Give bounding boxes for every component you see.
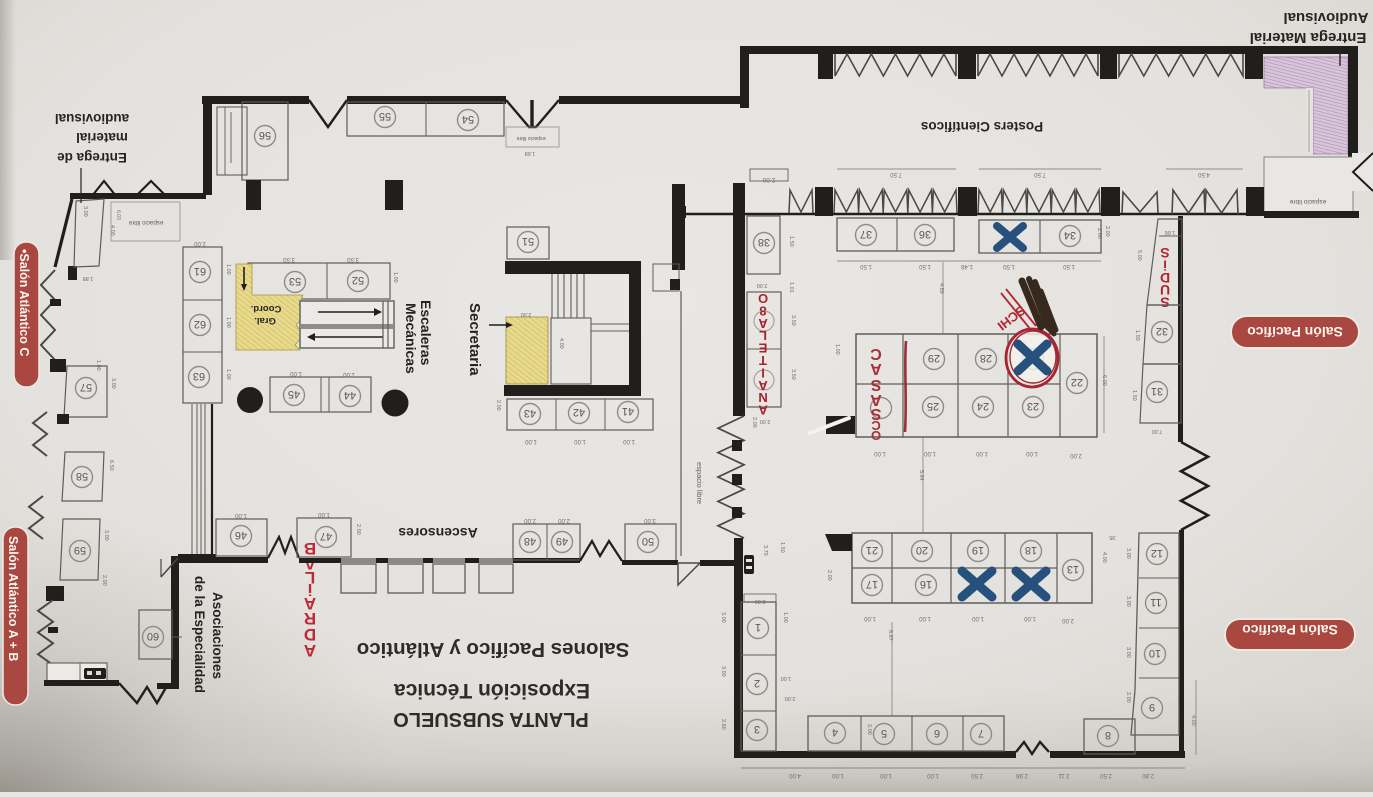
svg-text:1.00: 1.00 — [225, 369, 231, 380]
svg-text:1.50: 1.50 — [860, 263, 872, 269]
svg-text:2.00: 2.00 — [1125, 692, 1131, 703]
svg-text:48: 48 — [524, 535, 536, 547]
svg-text:1.00: 1.00 — [225, 264, 231, 275]
svg-text:2.00: 2.00 — [194, 240, 206, 246]
svg-text:2.00: 2.00 — [760, 418, 771, 424]
svg-text:55: 55 — [379, 110, 391, 122]
svg-text:8: 8 — [1105, 729, 1111, 741]
svg-text:3.00: 3.00 — [103, 530, 109, 541]
svg-text:C: C — [870, 345, 882, 362]
svg-text:2.00: 2.00 — [866, 724, 872, 735]
svg-text:6.87: 6.87 — [887, 630, 893, 641]
svg-text:1.00: 1.00 — [290, 370, 302, 376]
svg-text:61: 61 — [194, 265, 206, 277]
svg-text:49: 49 — [556, 535, 568, 547]
svg-text:2.00: 2.00 — [495, 400, 501, 411]
svg-text:53: 53 — [289, 275, 301, 287]
svg-text:19: 19 — [972, 544, 984, 556]
svg-text:1.00: 1.00 — [880, 772, 892, 778]
svg-text:7.50: 7.50 — [1034, 171, 1046, 177]
svg-text:1.00: 1.00 — [834, 344, 840, 355]
svg-text:Salón Pacífico: Salón Pacífico — [1242, 622, 1338, 638]
svg-text:1.50: 1.50 — [779, 542, 785, 553]
svg-text:de la Especialidad: de la Especialidad — [192, 576, 207, 693]
svg-text:2.00: 2.00 — [1096, 228, 1102, 239]
svg-text:1.00: 1.00 — [864, 615, 876, 621]
svg-text:2.11: 2.11 — [1058, 772, 1070, 778]
svg-text:1.00: 1.00 — [1026, 450, 1038, 456]
svg-text:20: 20 — [916, 544, 928, 556]
svg-text:2.00: 2.00 — [558, 517, 570, 523]
svg-text:2.50: 2.50 — [521, 311, 532, 317]
svg-text:56: 56 — [259, 129, 271, 141]
svg-text:1: 1 — [755, 621, 761, 633]
svg-text:O: O — [871, 428, 881, 443]
svg-text:1.00: 1.00 — [225, 317, 231, 328]
svg-text:1.68: 1.68 — [525, 150, 536, 156]
svg-text:4.00: 4.00 — [1101, 552, 1107, 563]
svg-text:A: A — [758, 403, 768, 418]
svg-text:3.50: 3.50 — [790, 369, 796, 380]
svg-text:13: 13 — [1067, 563, 1079, 575]
svg-text:Asociaciones: Asociaciones — [210, 592, 225, 679]
svg-text:51: 51 — [522, 235, 534, 247]
svg-text:1.50: 1.50 — [919, 263, 931, 269]
svg-text:29: 29 — [928, 352, 940, 364]
svg-text:2.98: 2.98 — [1016, 772, 1028, 778]
svg-text:4.50: 4.50 — [1198, 171, 1210, 177]
svg-text:1.00: 1.00 — [976, 450, 988, 456]
svg-text:1.88: 1.88 — [83, 275, 94, 281]
svg-text:Posters Científicos: Posters Científicos — [921, 119, 1043, 134]
svg-text:Salón Pacífico: Salón Pacífico — [1247, 324, 1343, 340]
svg-text:63: 63 — [193, 370, 205, 382]
svg-text:23: 23 — [1027, 400, 1039, 412]
svg-text:59: 59 — [74, 544, 86, 556]
svg-text:4.00: 4.00 — [109, 225, 115, 236]
svg-text:Escaleras: Escaleras — [418, 300, 434, 366]
svg-text:9: 9 — [1149, 701, 1155, 713]
svg-text:2.00: 2.00 — [826, 570, 832, 581]
svg-text:1.00: 1.00 — [1024, 615, 1036, 621]
svg-text:3.50: 3.50 — [347, 256, 359, 262]
svg-text:3.00: 3.00 — [644, 517, 656, 523]
svg-text:•Salón Atlántico C: •Salón Atlántico C — [17, 249, 31, 356]
svg-text:38: 38 — [758, 236, 770, 248]
svg-text:44: 44 — [344, 389, 356, 401]
svg-text:PLANTA SUBSUELO: PLANTA SUBSUELO — [393, 708, 589, 730]
svg-text:45: 45 — [288, 388, 300, 400]
svg-text:1.00: 1.00 — [924, 450, 936, 456]
svg-text:1.00: 1.00 — [781, 675, 792, 681]
svg-text:17: 17 — [866, 578, 878, 590]
svg-text:7: 7 — [978, 727, 984, 739]
svg-text:2.80: 2.80 — [1142, 772, 1154, 778]
svg-text:5.00: 5.00 — [1136, 250, 1142, 261]
svg-text:Entrega Material: Entrega Material — [1250, 29, 1367, 46]
svg-text:1.50: 1.50 — [1134, 330, 1140, 341]
svg-text:57: 57 — [80, 381, 92, 393]
svg-text:18: 18 — [1025, 544, 1037, 556]
svg-text:60: 60 — [147, 630, 159, 642]
svg-text:2.00: 2.00 — [755, 598, 766, 604]
svg-text:espacio libre: espacio libre — [516, 135, 545, 141]
svg-text:Coord.: Coord. — [251, 303, 282, 314]
svg-text:2.00: 2.00 — [355, 524, 361, 535]
svg-text:4: 4 — [832, 726, 838, 738]
svg-text:espacio libre: espacio libre — [128, 219, 163, 226]
svg-text:S: S — [1160, 295, 1169, 311]
svg-text:audiovisual: audiovisual — [55, 111, 129, 126]
svg-text:25: 25 — [927, 400, 939, 412]
svg-text:6: 6 — [934, 727, 940, 739]
svg-text:41: 41 — [622, 405, 634, 417]
svg-text:1.00: 1.00 — [919, 615, 931, 621]
svg-text:2.00: 2.00 — [751, 417, 757, 428]
svg-text:Exposición Técnica: Exposición Técnica — [394, 679, 590, 702]
svg-text:Gral.: Gral. — [254, 315, 276, 326]
svg-text:31: 31 — [1151, 385, 1163, 397]
svg-text:24: 24 — [977, 400, 989, 412]
svg-text:4.00: 4.00 — [1190, 715, 1196, 726]
svg-text:58: 58 — [76, 470, 88, 482]
svg-text:1.00: 1.00 — [343, 371, 355, 377]
svg-text:52: 52 — [352, 274, 364, 286]
svg-text:2.00: 2.00 — [1062, 617, 1074, 623]
svg-text:1.00: 1.00 — [782, 612, 788, 623]
svg-text:1.00: 1.00 — [874, 450, 886, 456]
svg-text:1.00: 1.00 — [832, 772, 844, 778]
svg-text:3.70: 3.70 — [762, 545, 768, 556]
svg-text:32: 32 — [1156, 325, 1168, 337]
svg-text:11: 11 — [1150, 596, 1161, 608]
svg-text:3.50: 3.50 — [790, 315, 796, 326]
svg-text:1.00: 1.00 — [318, 511, 330, 517]
svg-text:2.00: 2.00 — [1070, 452, 1082, 458]
svg-text:3: 3 — [754, 723, 760, 735]
svg-text:1.50: 1.50 — [1003, 263, 1015, 269]
svg-text:6.50: 6.50 — [108, 460, 114, 471]
svg-text:6.03: 6.03 — [115, 210, 121, 220]
svg-text:54: 54 — [462, 113, 474, 125]
svg-text:Secretaria: Secretaria — [466, 303, 483, 376]
svg-text:3.00: 3.00 — [82, 206, 88, 217]
svg-text:Entrega de: Entrega de — [57, 150, 127, 165]
svg-text:espacio libre: espacio libre — [1289, 198, 1326, 205]
svg-text:3.00: 3.00 — [1125, 596, 1131, 607]
svg-text:2.00: 2.00 — [762, 176, 775, 183]
svg-text:21: 21 — [866, 544, 878, 556]
svg-text:1.00: 1.00 — [95, 360, 101, 371]
svg-text:Salones Pacífico y Atlántico: Salones Pacífico y Atlántico — [357, 638, 630, 661]
svg-text:1.00: 1.00 — [927, 772, 939, 778]
svg-text:A: A — [304, 641, 316, 660]
svg-text:A: A — [870, 360, 882, 377]
svg-text:1.00: 1.00 — [235, 512, 247, 518]
svg-text:5: 5 — [881, 727, 887, 739]
svg-text:Mecánicas: Mecánicas — [403, 303, 419, 374]
svg-text:62: 62 — [194, 318, 206, 330]
svg-text:Salón Atlántico A + B: Salón Atlántico A + B — [6, 536, 20, 661]
svg-text:3.00: 3.00 — [720, 666, 726, 677]
svg-text:7.00: 7.00 — [1152, 428, 1163, 434]
svg-text:Audiovisual: Audiovisual — [1283, 9, 1368, 26]
svg-text:5.84: 5.84 — [918, 470, 924, 481]
svg-text:7.50: 7.50 — [890, 171, 902, 177]
svg-text:34: 34 — [1064, 229, 1076, 241]
svg-text:2: 2 — [754, 677, 760, 689]
svg-text:16: 16 — [920, 578, 932, 590]
svg-text:4.00: 4.00 — [558, 338, 564, 349]
svg-text:2.00: 2.00 — [757, 282, 768, 288]
svg-text:28: 28 — [980, 352, 992, 364]
svg-text:2.00: 2.00 — [785, 695, 796, 701]
svg-text:46: 46 — [235, 529, 247, 541]
svg-text:10: 10 — [1149, 647, 1161, 659]
svg-text:2.00: 2.00 — [524, 517, 536, 523]
svg-text:42: 42 — [573, 406, 585, 418]
svg-text:3.00: 3.00 — [720, 612, 726, 623]
svg-text:22: 22 — [1071, 376, 1083, 388]
svg-text:1.00: 1.00 — [525, 438, 537, 444]
svg-text:1.00: 1.00 — [392, 272, 398, 283]
svg-text:3.50: 3.50 — [283, 256, 295, 262]
svg-text:material: material — [76, 130, 128, 145]
svg-text:1.48: 1.48 — [961, 263, 973, 269]
svg-text:2.50: 2.50 — [1100, 772, 1112, 778]
svg-text:1.00: 1.00 — [972, 615, 984, 621]
svg-text:37: 37 — [860, 228, 872, 240]
svg-text:3.00: 3.00 — [1125, 647, 1131, 658]
svg-text:2.00: 2.00 — [1104, 226, 1110, 237]
svg-text:1.50: 1.50 — [788, 236, 794, 247]
svg-text:6.00: 6.00 — [1101, 375, 1107, 386]
svg-text:3.00: 3.00 — [1125, 548, 1131, 559]
svg-text:Ascensores: Ascensores — [398, 525, 478, 541]
svg-text:36: 36 — [919, 228, 931, 240]
svg-text:.95: .95 — [1109, 534, 1117, 540]
svg-text:43: 43 — [524, 407, 536, 419]
svg-text:1.01: 1.01 — [788, 282, 794, 293]
svg-text:1.00: 1.00 — [574, 438, 586, 444]
svg-text:1.50: 1.50 — [1063, 263, 1075, 269]
svg-text:S: S — [870, 376, 881, 393]
svg-text:2.00: 2.00 — [101, 575, 107, 586]
svg-text:4.00: 4.00 — [789, 772, 801, 778]
svg-text:47: 47 — [320, 530, 332, 542]
svg-text:2.60: 2.60 — [720, 719, 726, 730]
svg-text:1.66: 1.66 — [1165, 229, 1176, 235]
svg-text:50: 50 — [642, 535, 654, 547]
svg-text:4.89: 4.89 — [938, 283, 944, 294]
svg-text:2.50: 2.50 — [971, 772, 983, 778]
svg-text:1.00: 1.00 — [623, 438, 635, 444]
svg-text:1.50: 1.50 — [1131, 390, 1137, 401]
svg-text:espacio libre: espacio libre — [695, 462, 704, 504]
svg-text:3.00: 3.00 — [110, 378, 116, 389]
svg-text:12: 12 — [1151, 547, 1163, 559]
